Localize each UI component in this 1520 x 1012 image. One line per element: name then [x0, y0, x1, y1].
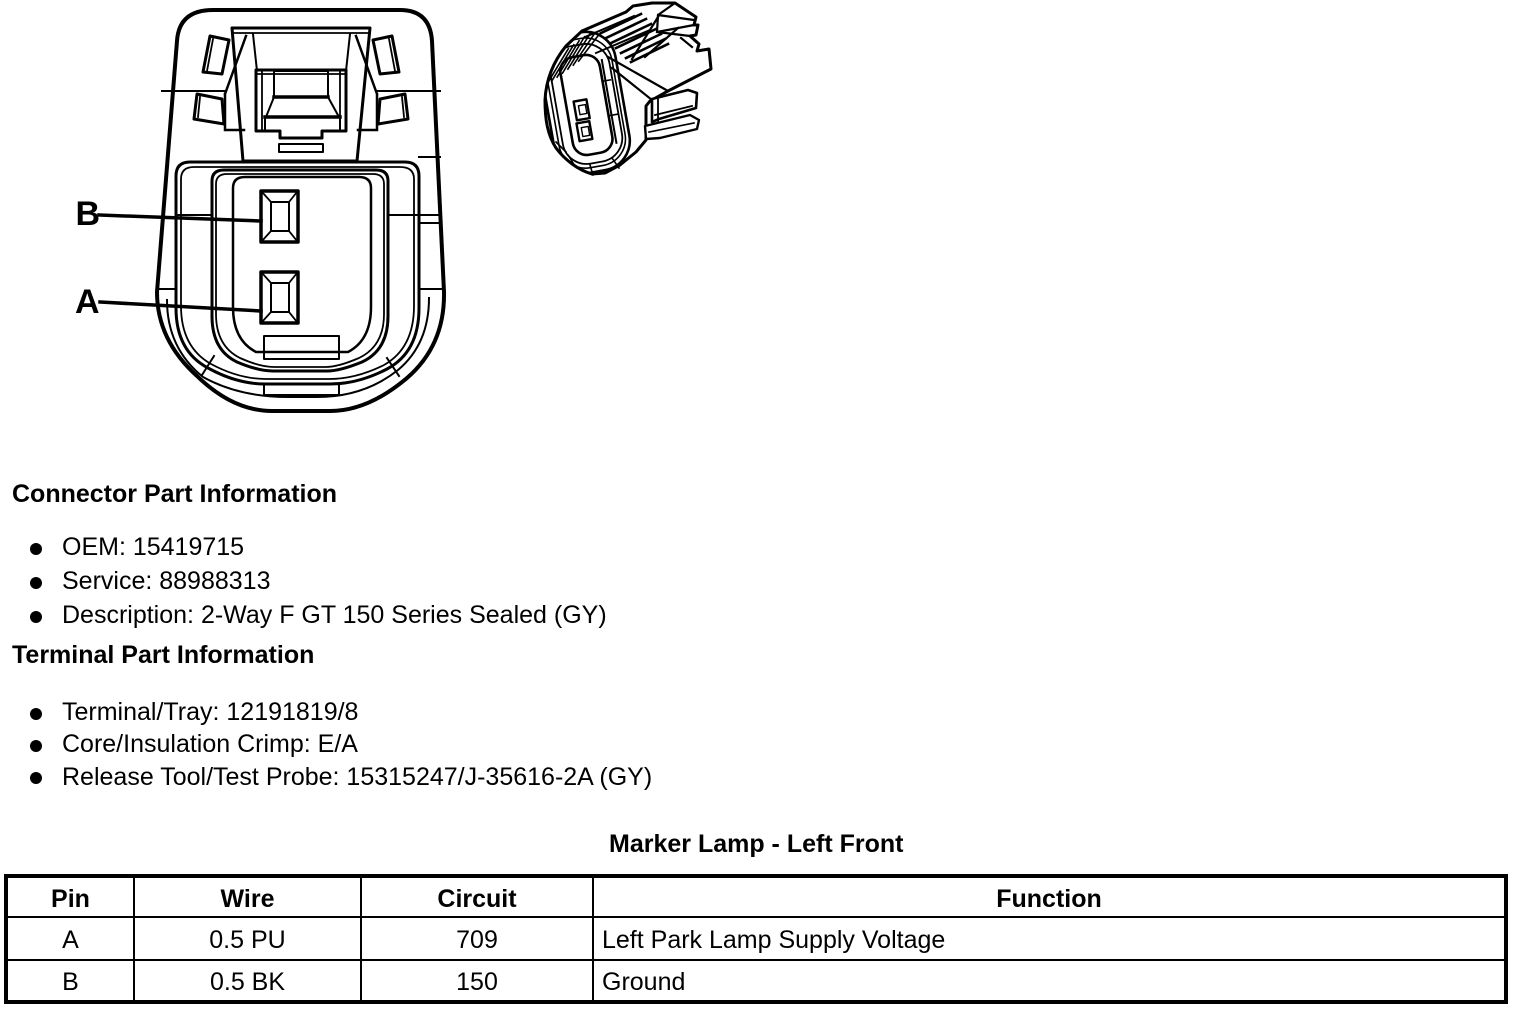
- svg-text:B: B: [76, 195, 101, 233]
- svg-text:A: A: [75, 283, 100, 321]
